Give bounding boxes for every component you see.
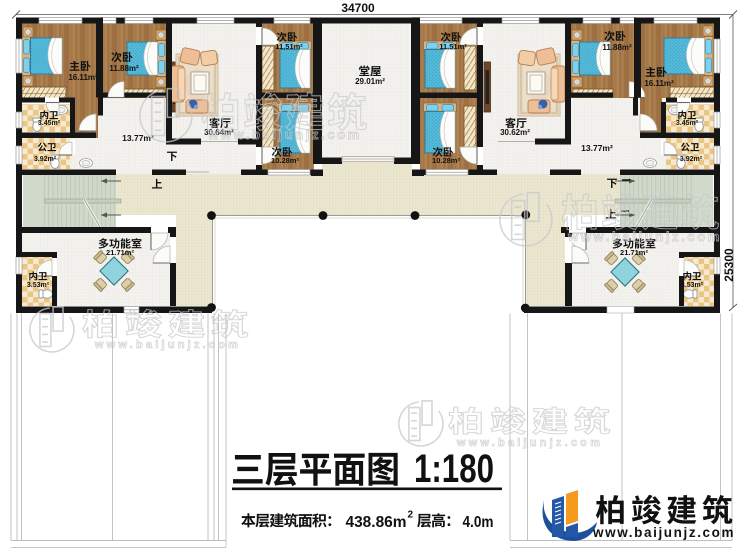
svg-text:www.baijunjz.com: www.baijunjz.com xyxy=(592,525,735,540)
svg-text:11.51m²: 11.51m² xyxy=(275,42,303,51)
svg-text:11.88m²: 11.88m² xyxy=(109,64,139,73)
svg-text:30.62m²: 30.62m² xyxy=(500,128,530,137)
svg-text:21.71m²: 21.71m² xyxy=(106,248,134,257)
svg-text:3.53m²: 3.53m² xyxy=(681,282,704,289)
svg-text:16.11m²: 16.11m² xyxy=(68,73,98,82)
svg-text:3.92m²: 3.92m² xyxy=(680,156,703,163)
svg-text:21.71m²: 21.71m² xyxy=(620,248,648,257)
svg-text:25300: 25300 xyxy=(722,248,736,282)
svg-text:2: 2 xyxy=(408,510,414,521)
svg-text:4.0m: 4.0m xyxy=(463,514,494,531)
svg-text:www.baijunjz.com: www.baijunjz.com xyxy=(567,229,722,244)
svg-text:11.88m²: 11.88m² xyxy=(602,43,632,52)
svg-text:10.28m²: 10.28m² xyxy=(271,156,299,165)
svg-text:10.28m²: 10.28m² xyxy=(432,156,460,165)
svg-text:3.45m²: 3.45m² xyxy=(676,120,699,127)
svg-text:34700: 34700 xyxy=(341,1,375,15)
svg-text:16.11m²: 16.11m² xyxy=(644,79,674,88)
svg-text:13.77m²: 13.77m² xyxy=(122,133,154,143)
svg-text:438.86m: 438.86m xyxy=(346,514,407,531)
svg-text:1:180: 1:180 xyxy=(414,447,494,491)
svg-text:www.baijunjz.com: www.baijunjz.com xyxy=(94,339,241,351)
svg-text:3.92m²: 3.92m² xyxy=(34,156,57,163)
svg-text:3.45m²: 3.45m² xyxy=(38,120,61,127)
svg-text:3.53m²: 3.53m² xyxy=(27,282,50,289)
svg-text:13.77m²: 13.77m² xyxy=(581,143,613,153)
svg-text:11.51m²: 11.51m² xyxy=(439,42,467,51)
svg-text:29.01m²: 29.01m² xyxy=(355,77,385,86)
svg-text:www.baijunjz.com: www.baijunjz.com xyxy=(207,127,362,142)
